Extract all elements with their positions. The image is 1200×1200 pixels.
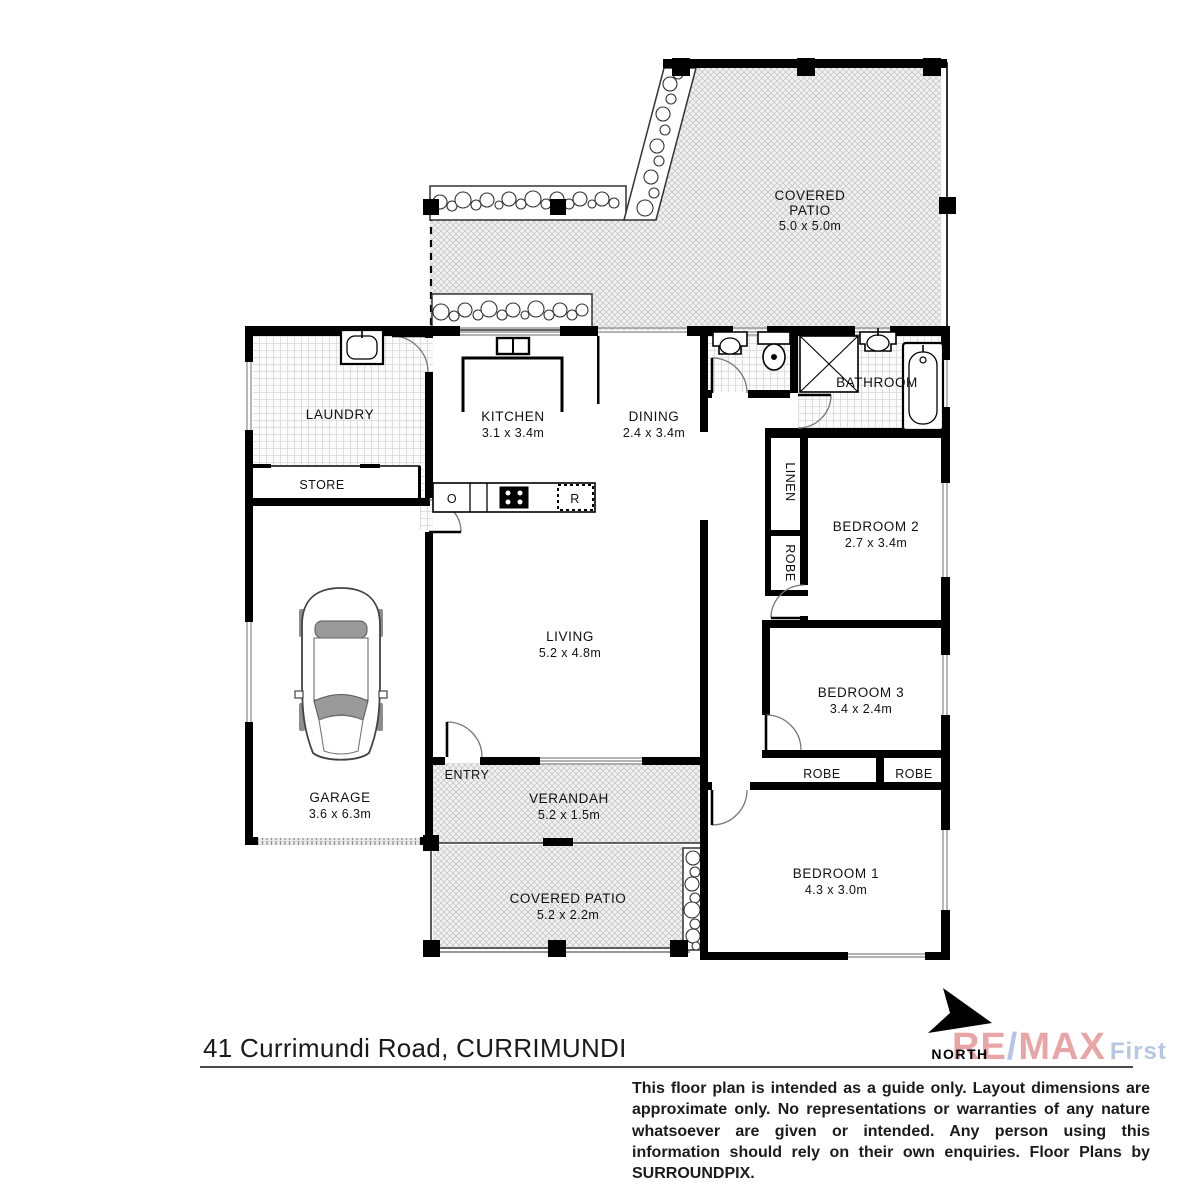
laundry-fixtures bbox=[341, 330, 383, 364]
dims-bedroom2: 2.7 x 3.4m bbox=[845, 536, 907, 550]
label-bedroom1: BEDROOM 1 bbox=[793, 866, 879, 881]
cooktop-icon bbox=[500, 487, 528, 508]
dims-dining: 2.4 x 3.4m bbox=[623, 426, 685, 440]
laundry-floor bbox=[253, 336, 425, 466]
label-bedroom3: BEDROOM 3 bbox=[818, 685, 904, 700]
dims-covered-patio-top: 5.0 x 5.0m bbox=[779, 219, 841, 233]
garage-door bbox=[258, 838, 420, 845]
remax-max: MAX bbox=[1018, 1026, 1105, 1068]
bedroom1-door-arc bbox=[712, 790, 747, 825]
label-robe-right: ROBE bbox=[895, 767, 932, 781]
label-bathroom: BATHROOM bbox=[836, 375, 918, 390]
label-entry: ENTRY bbox=[445, 768, 490, 782]
bedroom3-door-arc bbox=[766, 715, 801, 750]
floor-plan: COVERED PATIO 5.0 x 5.0m LAUNDRY STORE K… bbox=[0, 0, 1200, 1200]
bedroom2-door-arc bbox=[771, 585, 804, 618]
label-linen: LINEN bbox=[783, 462, 797, 501]
label-verandah: VERANDAH bbox=[529, 791, 609, 806]
entry-door-arc bbox=[447, 722, 482, 757]
label-living: LIVING bbox=[546, 629, 594, 644]
car-icon bbox=[295, 588, 387, 760]
property-address: 41 Currimundi Road, CURRIMUNDI bbox=[203, 1033, 627, 1064]
kitchen-bench bbox=[463, 358, 562, 412]
label-garage: GARAGE bbox=[309, 790, 370, 805]
label-bedroom2: BEDROOM 2 bbox=[833, 519, 919, 534]
floor-plan-page: COVERED PATIO 5.0 x 5.0m LAUNDRY STORE K… bbox=[0, 0, 1200, 1200]
label-store: STORE bbox=[299, 478, 344, 492]
dims-bedroom3: 3.4 x 2.4m bbox=[830, 702, 892, 716]
dims-covered-patio-bottom: 5.2 x 2.2m bbox=[537, 908, 599, 922]
label-robe-left: ROBE bbox=[803, 767, 840, 781]
remax-first: First bbox=[1110, 1038, 1167, 1065]
label-covered-patio-bottom: COVERED PATIO bbox=[510, 891, 627, 906]
toilet-tank bbox=[758, 332, 790, 344]
label-laundry: LAUNDRY bbox=[306, 407, 374, 422]
oven-label: O bbox=[447, 492, 457, 506]
dims-living: 5.2 x 4.8m bbox=[539, 646, 601, 660]
fridge-label: R bbox=[570, 492, 580, 506]
dims-garage: 3.6 x 6.3m bbox=[309, 807, 371, 821]
dims-verandah: 5.2 x 1.5m bbox=[538, 808, 600, 822]
disclaimer-text: This floor plan is intended as a guide o… bbox=[632, 1078, 1150, 1184]
label-covered-patio-top: COVERED bbox=[775, 188, 846, 203]
remax-slash: / bbox=[1007, 1026, 1019, 1068]
label-dining: DINING bbox=[629, 409, 680, 424]
svg-text:PATIO: PATIO bbox=[789, 203, 831, 218]
divider-line bbox=[200, 1066, 1133, 1068]
label-kitchen: KITCHEN bbox=[481, 409, 544, 424]
kitchen-fixtures bbox=[433, 338, 595, 512]
north-label: NORTH bbox=[921, 1046, 999, 1062]
dims-bedroom1: 4.3 x 3.0m bbox=[805, 883, 867, 897]
label-robe-hall: ROBE bbox=[783, 544, 797, 581]
dims-kitchen: 3.1 x 3.4m bbox=[482, 426, 544, 440]
